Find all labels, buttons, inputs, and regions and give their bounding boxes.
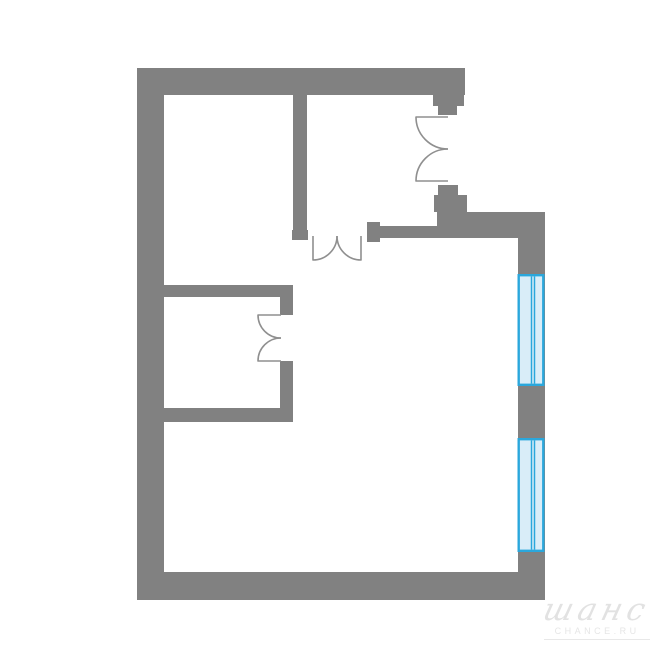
bedroom-partition [293, 95, 307, 230]
entry-stub-jamb-wide [434, 195, 467, 212]
storage-door-leaf-bottom-swing [258, 338, 281, 361]
hall-partition-jamb [367, 222, 380, 242]
storage-bottom-wall [160, 408, 293, 422]
storage-right-wall-top [280, 297, 293, 315]
top-wall-jamb-wide [433, 95, 464, 106]
entry-door-leaf-bottom-swing [416, 149, 448, 181]
top-wall [137, 68, 465, 95]
entry-door-leaf-top-swing [416, 117, 448, 149]
top-wall-jamb-narrow [438, 106, 457, 115]
hall-door-leaf-left-swing [313, 236, 337, 260]
storage-door-leaf-top-swing [258, 315, 281, 338]
bottom-wall [137, 572, 545, 600]
storage-top-wall [160, 285, 293, 297]
hall-door-leaf-right-swing [337, 236, 361, 260]
floorplan-canvas: шанс CHANCE.RU [0, 0, 670, 670]
bedroom-partition-jamb [292, 230, 308, 240]
floorplan-svg [0, 0, 670, 670]
hall-wall [463, 212, 545, 238]
left-wall [137, 68, 164, 600]
entry-stub-jamb-narrow [438, 185, 458, 195]
storage-right-wall-bottom [280, 361, 293, 411]
